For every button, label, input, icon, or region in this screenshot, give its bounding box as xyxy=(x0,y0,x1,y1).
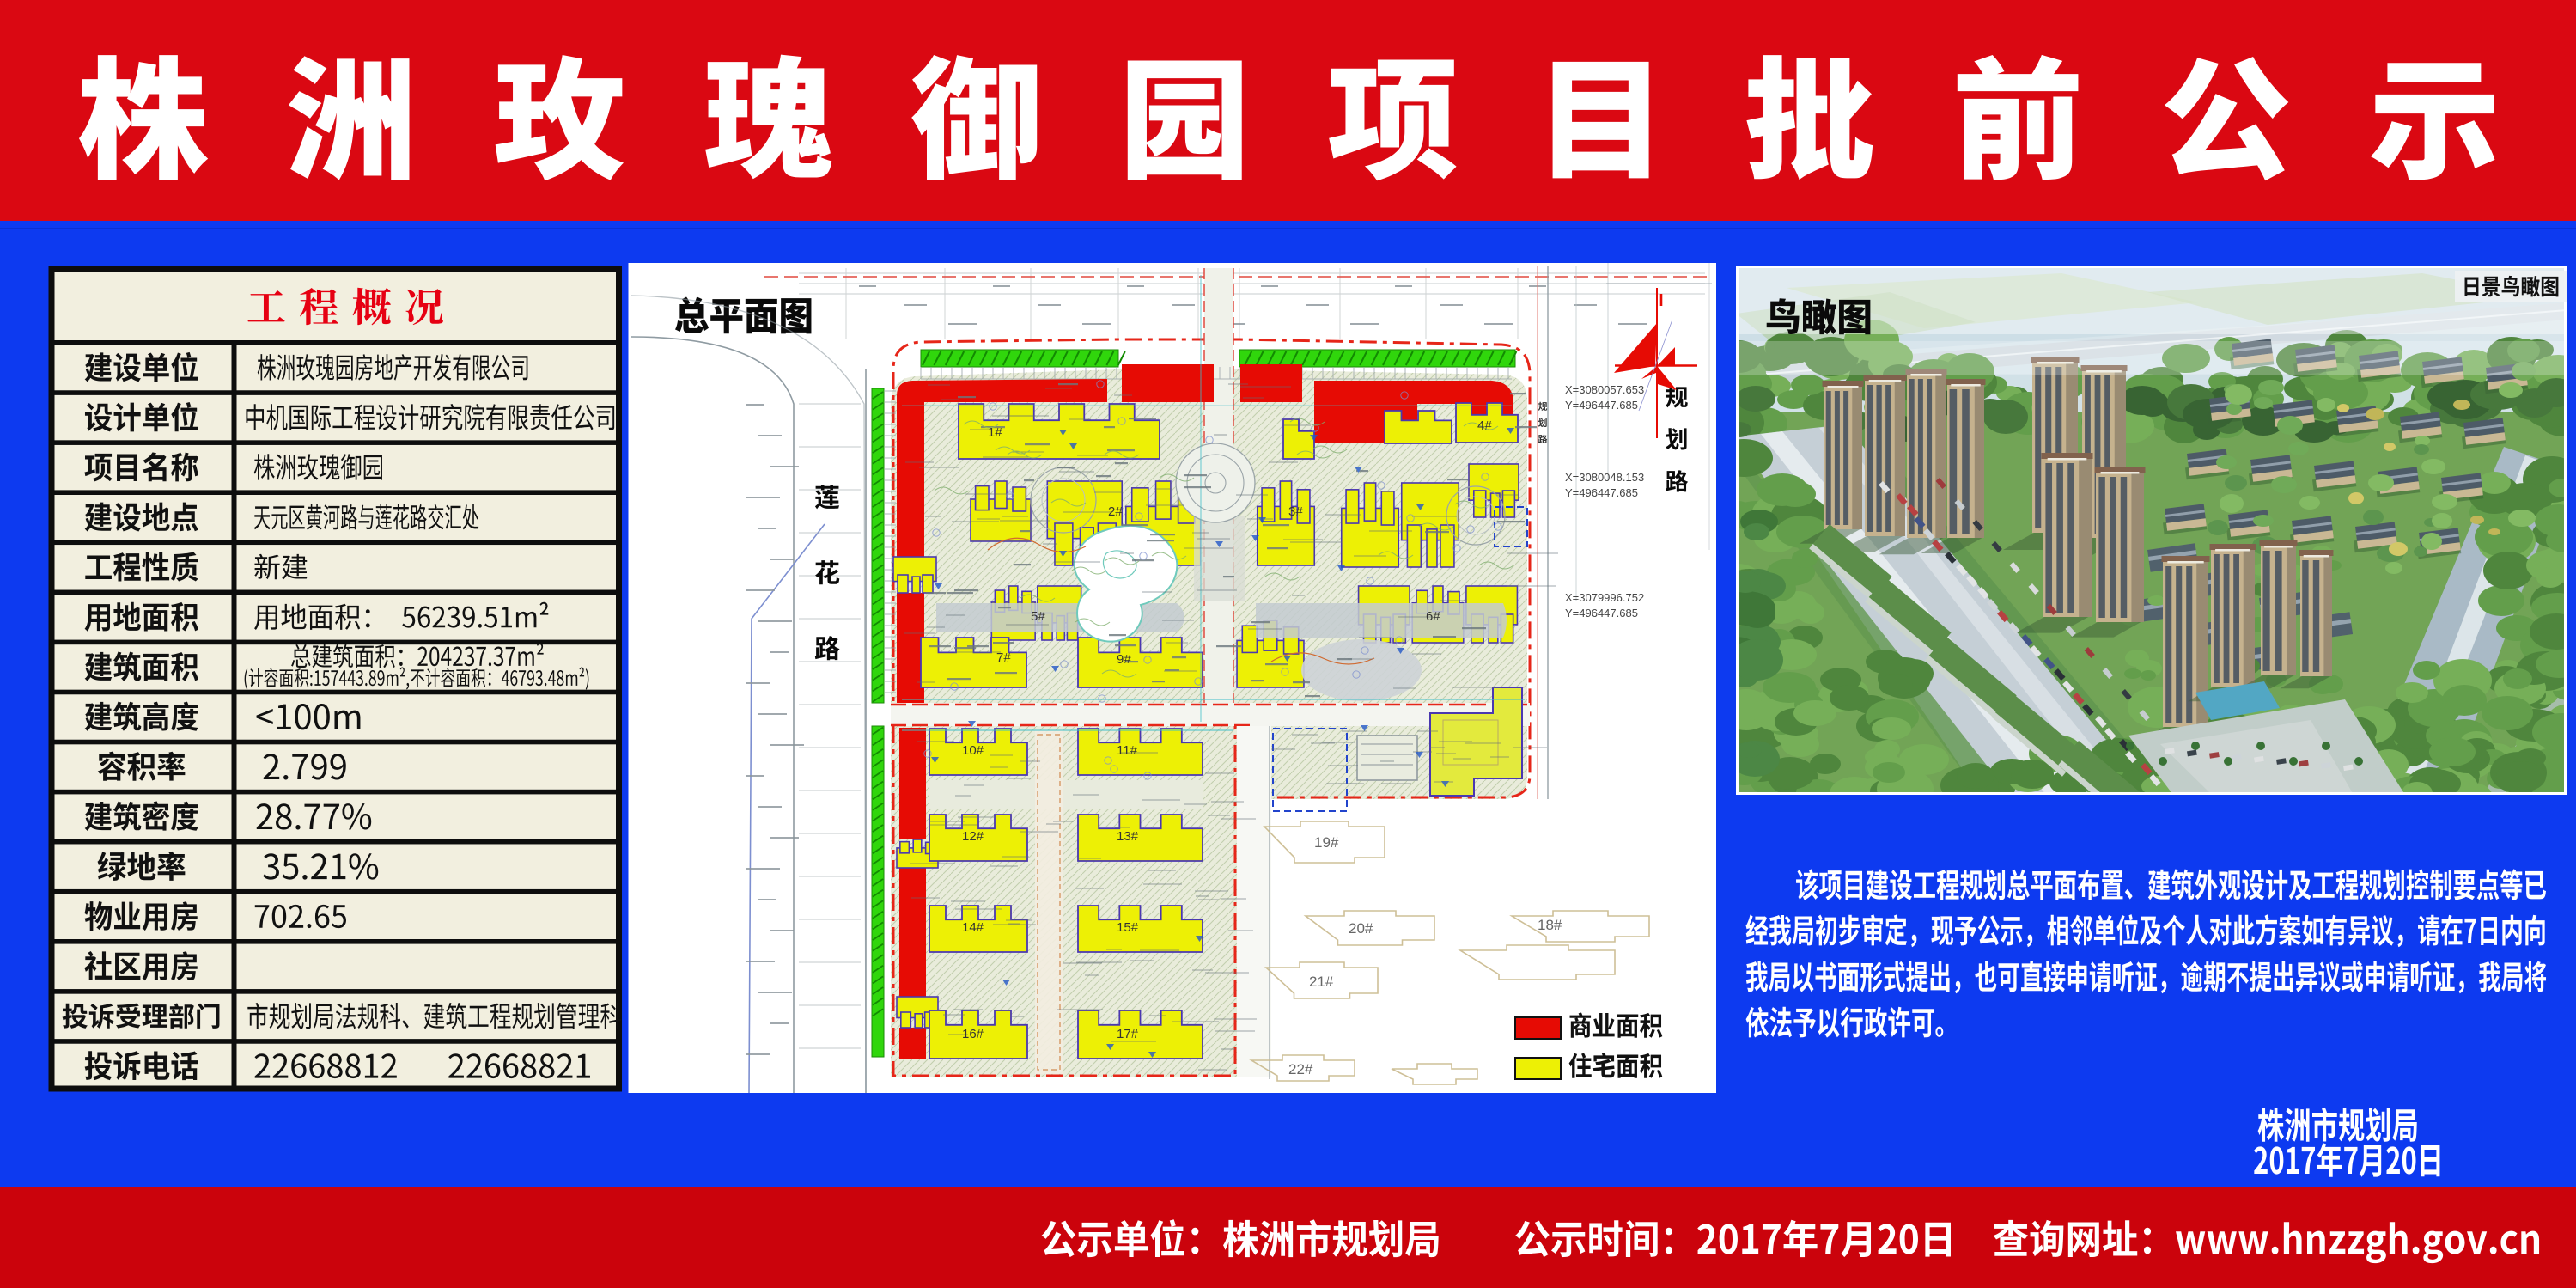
svg-text:14#: 14# xyxy=(962,920,984,935)
svg-text:15#: 15# xyxy=(1117,920,1139,935)
svg-text:6#: 6# xyxy=(1426,609,1440,624)
svg-text:16#: 16# xyxy=(962,1027,984,1041)
svg-text:7#: 7# xyxy=(996,650,1011,665)
svg-text:X=3080057.653: X=3080057.653 xyxy=(1565,383,1644,396)
svg-text:13#: 13# xyxy=(1117,829,1139,844)
svg-text:9#: 9# xyxy=(1117,652,1131,667)
svg-text:12#: 12# xyxy=(962,829,984,844)
svg-text:4#: 4# xyxy=(1477,418,1492,433)
svg-text:20#: 20# xyxy=(1349,920,1373,937)
svg-text:Y=496447.685: Y=496447.685 xyxy=(1565,486,1638,499)
svg-text:1#: 1# xyxy=(988,425,1002,440)
svg-text:19#: 19# xyxy=(1314,834,1339,851)
svg-text:18#: 18# xyxy=(1538,917,1562,933)
svg-text:Y=496447.685: Y=496447.685 xyxy=(1565,607,1638,620)
svg-text:3#: 3# xyxy=(1288,504,1303,519)
svg-text:X=3080048.153: X=3080048.153 xyxy=(1565,471,1644,484)
svg-text:17#: 17# xyxy=(1117,1027,1139,1041)
svg-text:Y=496447.685: Y=496447.685 xyxy=(1565,399,1638,412)
svg-text:21#: 21# xyxy=(1309,974,1334,990)
svg-text:10#: 10# xyxy=(962,743,984,758)
svg-text:2#: 2# xyxy=(1108,504,1123,519)
svg-text:11#: 11# xyxy=(1117,743,1138,758)
svg-text:5#: 5# xyxy=(1031,609,1045,624)
svg-text:X=3079996.752: X=3079996.752 xyxy=(1565,591,1644,604)
svg-text:22#: 22# xyxy=(1288,1061,1313,1077)
